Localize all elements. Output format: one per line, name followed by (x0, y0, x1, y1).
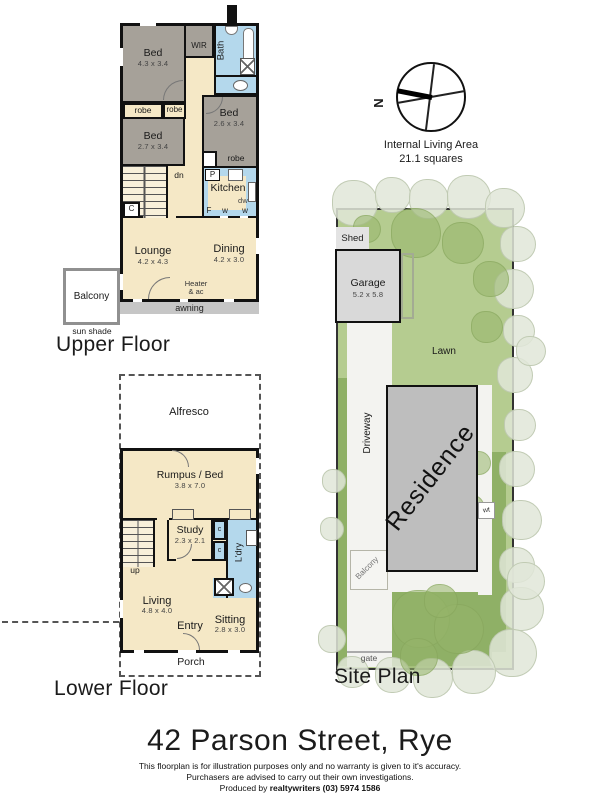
living-area-caption-2: 21.1 squares (374, 153, 488, 165)
compass-north-label: N (372, 95, 386, 111)
disclaimer-line-2: Purchasers are advised to carry out thei… (0, 773, 600, 783)
disclaimer-line-3: Produced by realtywriters (03) 5974 1586 (0, 784, 600, 794)
disclaimer-producer: realtywriters (03) 5974 1586 (270, 783, 381, 793)
page-title: 42 Parson Street, Rye (0, 724, 600, 758)
floorplan-page: Balcony awning Bed 4.3 x 3.4 WIR Bath ro… (0, 0, 600, 800)
compass: N Internal Living Area 21.1 squares (0, 0, 600, 800)
disclaimer-produced-by: Produced by (220, 783, 270, 793)
disclaimer-line-1: This floorplan is for illustration purpo… (0, 762, 600, 772)
living-area-caption-1: Internal Living Area (374, 139, 488, 151)
